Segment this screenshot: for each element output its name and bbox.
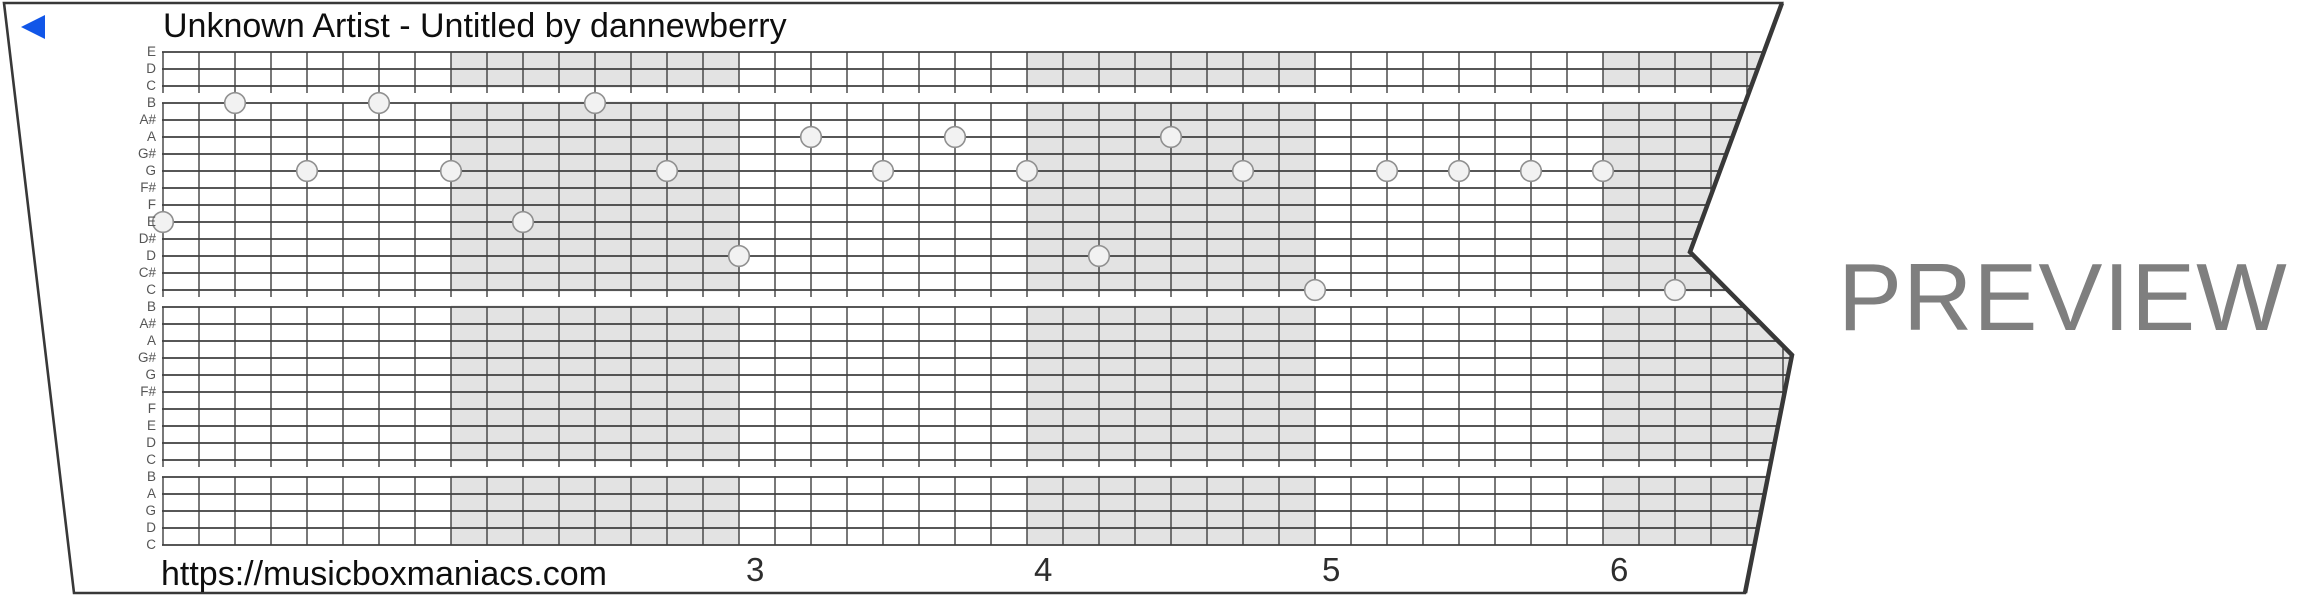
note-circle-G [1377, 161, 1398, 182]
preview-watermark: PREVIEW [1838, 243, 2288, 353]
row-label-g#: G# [98, 349, 156, 367]
row-label-c#: C# [98, 264, 156, 282]
note-circle-G [1521, 161, 1542, 182]
site-url: https://musicboxmaniacs.com [161, 555, 607, 594]
row-label-g: G [98, 162, 156, 180]
note-circle-A [1161, 127, 1182, 148]
octave-gap-band [162, 292, 1810, 306]
row-label-g: G [98, 502, 156, 520]
octave-gap-band [162, 88, 1810, 102]
measure-number-3: 3 [746, 551, 764, 589]
note-circle-C [1305, 280, 1326, 301]
note-circle-G [297, 161, 318, 182]
note-circle-A [945, 127, 966, 148]
note-circle-G [1593, 161, 1614, 182]
note-circle-D [729, 246, 750, 267]
row-label-g: G [98, 366, 156, 384]
row-label-d: D [98, 434, 156, 452]
row-label-d: D [98, 60, 156, 78]
note-circle-G [1233, 161, 1254, 182]
row-label-b: B [98, 94, 156, 112]
row-label-g#: G# [98, 145, 156, 163]
note-circle-G [1017, 161, 1038, 182]
measure-number-5: 5 [1322, 551, 1340, 589]
note-circle-D [1089, 246, 1110, 267]
track-title: Unknown Artist - Untitled by dannewberry [163, 7, 787, 46]
note-circle-G [873, 161, 894, 182]
melody-preview: Unknown Artist - Untitled by dannewberry… [0, 0, 2310, 597]
note-circle-A [801, 127, 822, 148]
note-circle-G [657, 161, 678, 182]
row-label-e: E [98, 417, 156, 435]
row-label-d#: D# [98, 230, 156, 248]
row-label-c: C [98, 281, 156, 299]
row-label-b: B [98, 468, 156, 486]
row-label-d: D [98, 247, 156, 265]
measure-number-6: 6 [1610, 551, 1628, 589]
row-label-e: E [98, 213, 156, 231]
row-label-a: A [98, 128, 156, 146]
row-label-a#: A# [98, 111, 156, 129]
note-circle-E [513, 212, 534, 233]
play-button[interactable] [18, 15, 48, 45]
row-label-b: B [98, 298, 156, 316]
note-circle-G [441, 161, 462, 182]
note-circle-B [369, 93, 390, 114]
row-label-f#: F# [98, 383, 156, 401]
play-icon [21, 15, 45, 39]
measure-number-4: 4 [1034, 551, 1052, 589]
note-circle-B [585, 93, 606, 114]
row-label-e: E [98, 43, 156, 61]
row-label-f#: F# [98, 179, 156, 197]
row-label-a: A [98, 332, 156, 350]
row-label-a#: A# [98, 315, 156, 333]
row-label-a: A [98, 485, 156, 503]
note-circle-B [225, 93, 246, 114]
note-circle-C [1665, 280, 1686, 301]
octave-gap-band [162, 462, 1810, 476]
row-label-f: F [98, 196, 156, 214]
row-label-c: C [98, 451, 156, 469]
row-label-c: C [98, 536, 156, 554]
note-circle-G [1449, 161, 1470, 182]
row-label-c: C [98, 77, 156, 95]
row-label-d: D [98, 519, 156, 537]
row-label-f: F [98, 400, 156, 418]
